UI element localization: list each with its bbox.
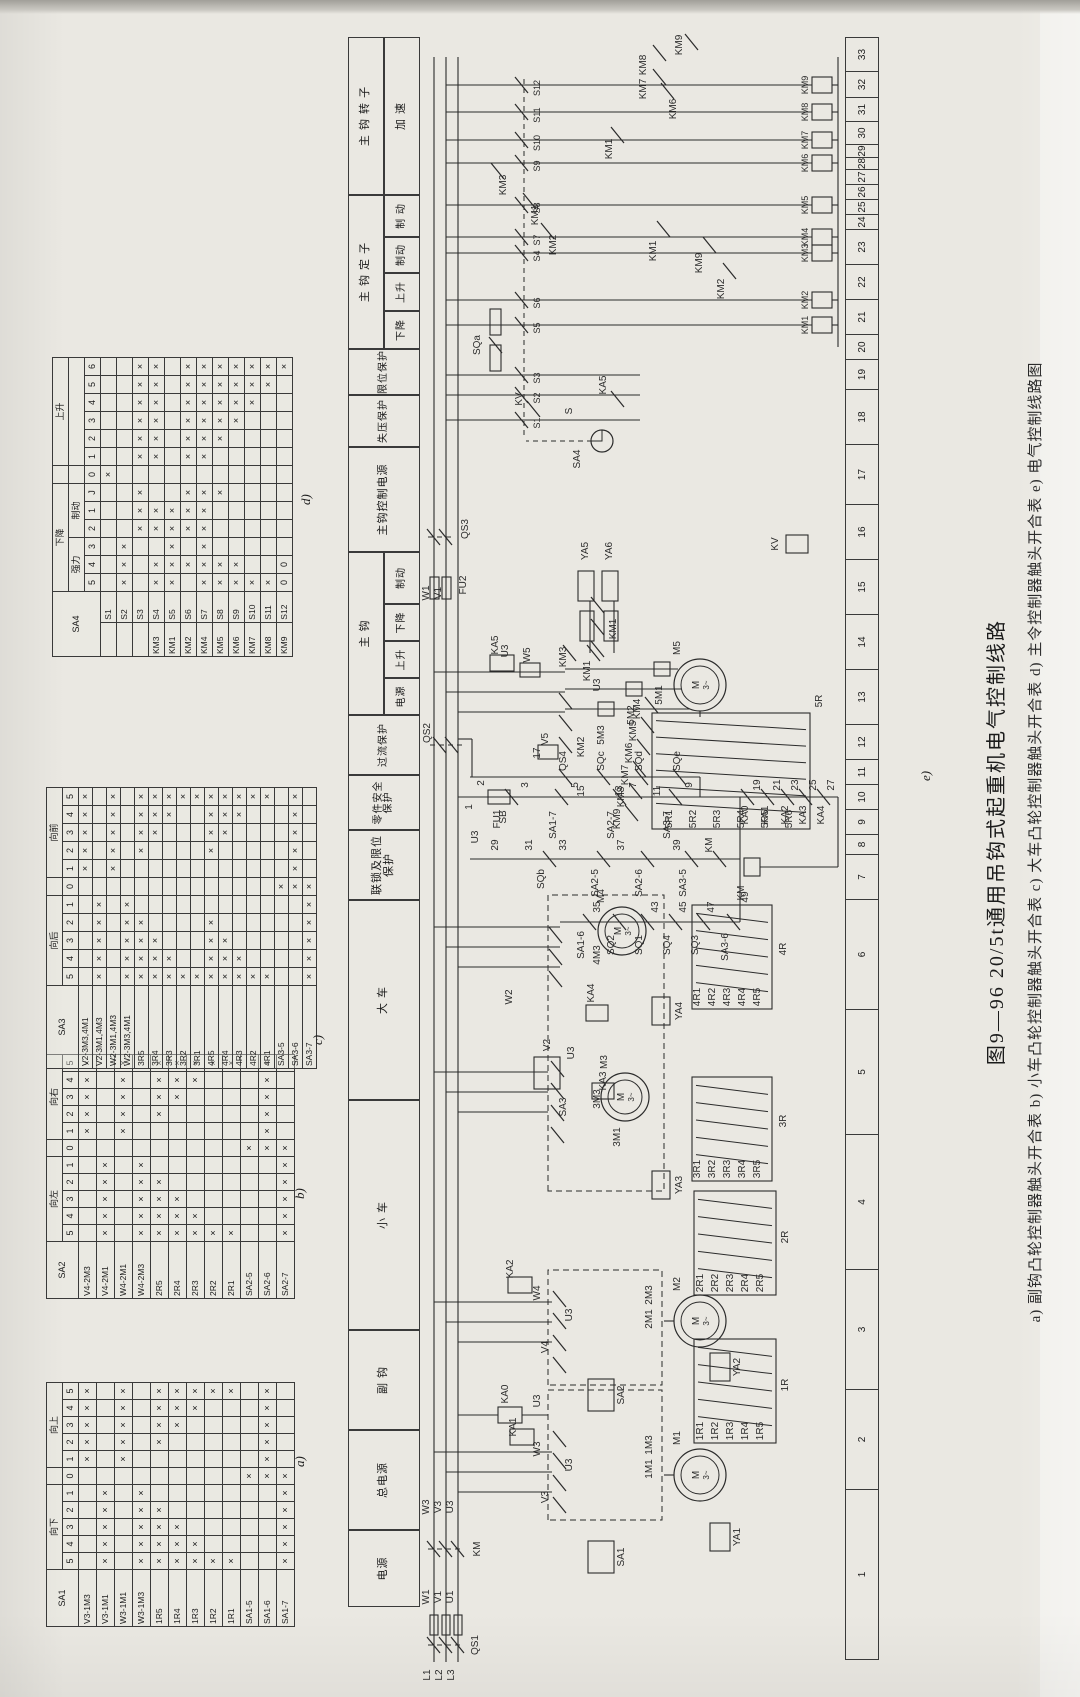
mark-cell <box>107 932 121 950</box>
mark-cell <box>101 502 117 520</box>
schematic-label: SA3 <box>558 1097 569 1116</box>
mark-cell: × <box>117 574 133 592</box>
mark-cell: × <box>259 1383 277 1400</box>
mark-cell <box>187 1468 205 1485</box>
mark-cell <box>205 1417 223 1434</box>
contact-icon <box>587 645 600 661</box>
mark-cell <box>259 1519 277 1536</box>
table-row: KM6S9×××××× <box>229 358 245 657</box>
mark-cell <box>121 860 135 878</box>
mark-cell: × <box>303 932 317 950</box>
mark-cell <box>205 860 219 878</box>
mark-cell: × <box>245 394 261 412</box>
mark-cell: × <box>117 538 133 556</box>
schematic-label: YA5 <box>580 541 591 560</box>
col-group <box>53 466 69 484</box>
mark-cell <box>101 538 117 556</box>
mark-cell <box>163 824 177 842</box>
schematic-label: SQa <box>472 335 483 355</box>
mark-cell: × <box>97 1191 115 1208</box>
mark-cell <box>97 1383 115 1400</box>
ruler-cell: 1 <box>845 1490 879 1660</box>
mark-cell <box>247 896 261 914</box>
mark-cell: × <box>213 394 229 412</box>
row-label: SA2-7 <box>277 1242 295 1299</box>
row-label: SA1-5 <box>241 1570 259 1627</box>
mark-cell: × <box>151 1208 169 1225</box>
mark-cell: × <box>233 950 247 968</box>
mark-cell: × <box>197 484 213 502</box>
mark-cell <box>289 968 303 986</box>
row-label: 2R3 <box>187 1242 205 1299</box>
mark-cell: × <box>151 1400 169 1417</box>
col-number: 3 <box>63 932 79 950</box>
mark-cell: × <box>277 1140 295 1157</box>
mark-cell: × <box>115 1089 133 1106</box>
mark-cell <box>223 1123 241 1140</box>
mark-cell <box>275 806 289 824</box>
mark-cell: × <box>79 1089 97 1106</box>
mark-cell: × <box>107 842 121 860</box>
mark-cell <box>101 574 117 592</box>
mark-cell: × <box>149 968 163 986</box>
ruler-cell: 12 <box>845 725 879 760</box>
mark-cell: × <box>149 358 165 376</box>
resistor-hatch <box>656 737 806 746</box>
ruler-cell: 14 <box>845 615 879 670</box>
row-label: W3-1M1 <box>115 1570 133 1627</box>
mark-cell <box>133 1434 151 1451</box>
mark-cell <box>261 842 275 860</box>
mark-cell <box>177 824 191 842</box>
schematic-label: SQ1 <box>634 935 645 955</box>
mark-cell <box>133 1400 151 1417</box>
contact-icon <box>591 619 604 635</box>
mark-cell: × <box>213 358 229 376</box>
page-margin <box>1040 0 1080 1697</box>
col-number: 1 <box>63 896 79 914</box>
table-row: SA2-7×××××× <box>277 1055 295 1299</box>
mark-cell: × <box>135 932 149 950</box>
schematic-label: YA1 <box>732 1527 743 1546</box>
mark-cell <box>169 1502 187 1519</box>
schematic-label: L1 <box>422 1669 433 1681</box>
resistor-hatch <box>696 931 768 940</box>
contact-icon <box>685 34 698 50</box>
mark-cell <box>261 824 275 842</box>
schematic-label: 2M3 <box>644 1285 655 1305</box>
mark-cell <box>149 878 163 896</box>
mark-cell <box>229 484 245 502</box>
table-row: 2R2×× <box>205 1055 223 1299</box>
mark-cell <box>261 806 275 824</box>
table-row: 1R4×××××× <box>169 1383 187 1627</box>
mark-cell: × <box>169 1225 187 1242</box>
figure-caption: 图9—96 20/5t通用吊钩式起重机电气控制线路 <box>980 142 1009 1542</box>
col-number: 1 <box>63 1485 79 1502</box>
mark-cell: × <box>169 1089 187 1106</box>
mark-cell: × <box>149 394 165 412</box>
mark-cell: × <box>133 1174 151 1191</box>
table-row: V3-1M1××××× <box>97 1383 115 1627</box>
ruler-cell: 27 <box>845 170 879 185</box>
mark-cell <box>97 1468 115 1485</box>
mark-cell <box>241 1123 259 1140</box>
mark-cell <box>169 1468 187 1485</box>
mark-cell <box>205 1123 223 1140</box>
mark-cell <box>163 914 177 932</box>
mark-cell <box>97 1072 115 1089</box>
mark-cell <box>261 860 275 878</box>
schematic-label: 5R1 <box>664 809 675 828</box>
mark-cell <box>151 1157 169 1174</box>
mark-cell: × <box>133 412 149 430</box>
ruler-cell: 23 <box>845 230 879 265</box>
mark-cell <box>151 1140 169 1157</box>
schematic-label: SA1-6 <box>576 931 587 959</box>
mark-cell <box>97 1417 115 1434</box>
mark-cell: × <box>79 1434 97 1451</box>
row-label: 1R2 <box>205 1570 223 1627</box>
schematic-label: QS1 <box>470 1635 481 1655</box>
mark-cell: × <box>151 1536 169 1553</box>
mark-cell <box>79 878 93 896</box>
mark-cell <box>223 1089 241 1106</box>
mark-cell: × <box>133 358 149 376</box>
ruler-cell: 17 <box>845 445 879 505</box>
schematic-label: QS4 <box>558 751 569 771</box>
mark-cell <box>117 412 133 430</box>
contact-icon <box>553 1431 566 1447</box>
schematic-label: 2M1 <box>644 1309 655 1329</box>
mark-cell: × <box>181 412 197 430</box>
mark-cell: × <box>79 860 93 878</box>
schematic-label: FU2 <box>458 575 469 594</box>
mark-cell <box>229 448 245 466</box>
mark-cell <box>101 484 117 502</box>
mark-cell: × <box>151 1089 169 1106</box>
col-number: 5 <box>63 968 79 986</box>
table-row: V4-2M3××××× <box>79 1055 97 1299</box>
schematic-label: W2 <box>504 989 515 1004</box>
mark-cell <box>261 932 275 950</box>
mark-cell <box>205 896 219 914</box>
mark-cell <box>101 394 117 412</box>
mark-cell <box>115 1485 133 1502</box>
schematic-label: 29 <box>490 839 501 851</box>
col-subgroup <box>69 466 85 484</box>
schematic-label: SA3-5 <box>678 869 689 897</box>
ruler-cell: 11 <box>845 760 879 785</box>
contact-icon <box>625 805 638 821</box>
mark-cell <box>241 1502 259 1519</box>
header-cell: 电源 <box>348 1530 420 1607</box>
mark-cell: × <box>289 824 303 842</box>
mark-cell: × <box>181 430 197 448</box>
schematic-label: KA4 <box>586 983 597 1002</box>
mark-cell <box>223 1502 241 1519</box>
col-number: 1 <box>63 1157 79 1174</box>
schematic-label: V2 <box>542 1038 553 1051</box>
mark-cell <box>259 1208 277 1225</box>
mark-cell <box>205 1174 223 1191</box>
mark-cell: × <box>97 1174 115 1191</box>
mark-cell <box>233 914 247 932</box>
contactor-coil <box>812 132 832 148</box>
schematic-label: KM1 <box>608 618 619 639</box>
row-label: 4R2 <box>247 986 261 1069</box>
mark-cell <box>303 788 317 806</box>
schematic-label: KM9 <box>694 252 705 273</box>
mark-cell: × <box>241 1468 259 1485</box>
mark-cell <box>191 914 205 932</box>
motor-letter: M <box>691 681 702 689</box>
mark-cell <box>223 1174 241 1191</box>
table-row: W3-1M1××××× <box>115 1383 133 1627</box>
mark-cell <box>241 1553 259 1570</box>
schematic-label: 2R3 <box>725 1273 736 1292</box>
mark-cell <box>205 1451 223 1468</box>
mark-cell <box>101 376 117 394</box>
mark-cell <box>197 466 213 484</box>
schematic-label: KV <box>514 392 525 406</box>
mark-cell <box>163 896 177 914</box>
table-row: 3R3×××× <box>163 788 177 1069</box>
table-row: V3-1M3××××× <box>79 1383 97 1627</box>
schematic-label: U3 <box>564 1458 575 1471</box>
schematic-label: 3R2 <box>707 1159 718 1178</box>
table-row: KM9S1200× <box>277 358 293 657</box>
mark-cell: × <box>289 788 303 806</box>
mark-cell: × <box>277 1208 295 1225</box>
mark-cell <box>93 860 107 878</box>
mark-cell: × <box>197 538 213 556</box>
mark-cell <box>245 430 261 448</box>
mark-cell: × <box>181 376 197 394</box>
mark-cell <box>165 466 181 484</box>
mark-cell <box>191 932 205 950</box>
mark-cell: × <box>133 1519 151 1536</box>
mark-cell <box>115 1502 133 1519</box>
mark-cell <box>191 806 205 824</box>
schematic-label: 37 <box>616 839 627 851</box>
mark-cell: × <box>259 1140 277 1157</box>
mark-cell <box>223 1106 241 1123</box>
mark-cell: × <box>187 1072 205 1089</box>
schematic-label: 3R5 <box>752 1159 763 1178</box>
mark-cell <box>107 896 121 914</box>
schematic-label: SA2 <box>616 1385 627 1404</box>
schematic-label: 4R5 <box>752 987 763 1006</box>
header-cell: 零件安全保护 <box>348 775 420 830</box>
mark-cell <box>233 842 247 860</box>
mark-cell <box>223 1451 241 1468</box>
mark-cell: × <box>197 574 213 592</box>
schematic-label: 2R <box>780 1231 791 1244</box>
col-number: 1 <box>85 502 101 520</box>
mark-cell <box>115 1468 133 1485</box>
motor-letter: M <box>691 1317 702 1325</box>
mark-cell <box>163 878 177 896</box>
mark-cell <box>121 806 135 824</box>
mark-cell <box>101 556 117 574</box>
mark-cell <box>261 520 277 538</box>
mark-cell: × <box>107 788 121 806</box>
mark-cell <box>107 950 121 968</box>
col-number: 2 <box>63 1106 79 1123</box>
mark-cell <box>133 1089 151 1106</box>
mark-cell <box>303 806 317 824</box>
mark-cell <box>205 878 219 896</box>
table-row: 1R3×××× <box>187 1383 205 1627</box>
schematic-label: KM1 <box>648 240 659 261</box>
mark-cell: × <box>181 358 197 376</box>
schematic-label: 31 <box>524 839 535 851</box>
table-row: W2-3M1,4M3××××× <box>107 788 121 1069</box>
mark-cell: × <box>219 950 233 968</box>
mark-cell <box>275 968 289 986</box>
mark-cell <box>277 1089 295 1106</box>
component-box <box>586 1005 608 1021</box>
mark-cell: × <box>165 538 181 556</box>
mark-cell <box>233 824 247 842</box>
mark-cell <box>97 1089 115 1106</box>
mark-cell: × <box>187 1400 205 1417</box>
mark-cell <box>229 430 245 448</box>
mark-cell: × <box>133 376 149 394</box>
resistor-hatch <box>656 770 806 779</box>
mark-cell <box>277 520 293 538</box>
schematic-label: 17 <box>532 747 543 759</box>
mark-cell: × <box>115 1106 133 1123</box>
mark-cell <box>151 1451 169 1468</box>
mark-cell: × <box>149 556 165 574</box>
contactor-coil <box>812 245 832 261</box>
mark-cell: × <box>229 412 245 430</box>
figure-subcaption: a) 副钩凸轮控制器触头开合表 b) 小车凸轮控制器触头开合表 c) 大车凸轮控… <box>1024 92 1045 1592</box>
mark-cell: × <box>197 502 213 520</box>
mark-cell <box>223 1157 241 1174</box>
schematic-label: U1 <box>445 1590 456 1603</box>
mark-cell <box>247 860 261 878</box>
component-box <box>588 1541 614 1573</box>
mark-cell <box>275 896 289 914</box>
mark-cell <box>205 1089 223 1106</box>
mark-cell <box>101 520 117 538</box>
mark-cell: × <box>133 1536 151 1553</box>
contact-icon <box>559 715 572 731</box>
mark-cell <box>261 878 275 896</box>
col-subgroup: 制动 <box>69 484 85 538</box>
mark-cell: × <box>303 950 317 968</box>
mark-cell <box>213 520 229 538</box>
mark-cell <box>205 1140 223 1157</box>
mark-cell <box>149 842 163 860</box>
schematic-label: KM1 <box>582 660 593 681</box>
schematic-label: SA3-6 <box>720 933 731 961</box>
mark-cell <box>169 1485 187 1502</box>
row-label: W4-2M1 <box>115 1242 133 1299</box>
mark-cell <box>191 878 205 896</box>
contact-icon <box>553 1497 566 1513</box>
mark-cell <box>213 448 229 466</box>
schematic-label: V1 <box>433 1590 444 1603</box>
col-number: 2 <box>63 1434 79 1451</box>
table-row: SA3-5× <box>275 788 289 1069</box>
row-label-km: KM2 <box>181 622 197 656</box>
mark-cell <box>117 520 133 538</box>
mark-cell: 0 <box>277 556 293 574</box>
schematic-label: 11 <box>652 785 663 796</box>
master-contact-label: S1 <box>532 417 542 428</box>
coil-label: KM3 <box>800 244 810 263</box>
mark-cell: × <box>219 968 233 986</box>
mark-cell <box>205 1434 223 1451</box>
mark-cell: × <box>97 1519 115 1536</box>
mark-cell: × <box>115 1072 133 1089</box>
schematic-label: KM3 <box>558 646 569 667</box>
col-number: 4 <box>85 394 101 412</box>
table-row: SA3-6×××××× <box>289 788 303 1069</box>
schematic-label: W3 <box>421 1499 432 1514</box>
mark-cell: × <box>133 484 149 502</box>
component-box <box>580 611 594 641</box>
row-label: S7 <box>197 592 213 623</box>
mark-cell: × <box>133 448 149 466</box>
mark-cell <box>133 1106 151 1123</box>
mark-cell <box>277 448 293 466</box>
schematic-label: 5R6 <box>784 809 795 828</box>
row-label: SA2-5 <box>241 1242 259 1299</box>
mark-cell <box>233 860 247 878</box>
mark-cell: × <box>197 412 213 430</box>
col-number: 0 <box>85 466 101 484</box>
contact-icon <box>551 1061 564 1077</box>
mark-cell: × <box>151 1106 169 1123</box>
col-number: 2 <box>63 842 79 860</box>
schematic-label: SQ3 <box>690 935 701 955</box>
mark-cell: × <box>223 1225 241 1242</box>
resistor-hatch <box>698 1217 772 1226</box>
table-row: W3-1M3××××× <box>133 1383 151 1627</box>
mark-cell <box>133 1123 151 1140</box>
mark-cell: × <box>277 1468 295 1485</box>
mark-cell: × <box>121 914 135 932</box>
mark-cell <box>277 1072 295 1089</box>
mark-cell <box>135 860 149 878</box>
mark-cell: × <box>233 806 247 824</box>
subfigure-label: a) <box>292 1456 308 1467</box>
mark-cell: × <box>133 1553 151 1570</box>
mark-cell: × <box>121 932 135 950</box>
mark-cell: × <box>191 788 205 806</box>
mark-cell: × <box>169 1191 187 1208</box>
mark-cell: × <box>169 1417 187 1434</box>
mark-cell: × <box>115 1123 133 1140</box>
mark-cell: × <box>151 1174 169 1191</box>
mark-cell <box>97 1140 115 1157</box>
row-label: 3R5 <box>135 986 149 1069</box>
header-sub-cell: 制动 <box>384 237 420 273</box>
mark-cell <box>79 896 93 914</box>
mark-cell <box>277 1417 295 1434</box>
schematic-label: 33 <box>558 839 569 851</box>
schematic-label: W5 <box>522 647 533 662</box>
contactor-coil <box>812 104 832 120</box>
mark-cell <box>245 412 261 430</box>
mark-cell <box>205 1519 223 1536</box>
schematic-label: 47 <box>706 901 717 913</box>
